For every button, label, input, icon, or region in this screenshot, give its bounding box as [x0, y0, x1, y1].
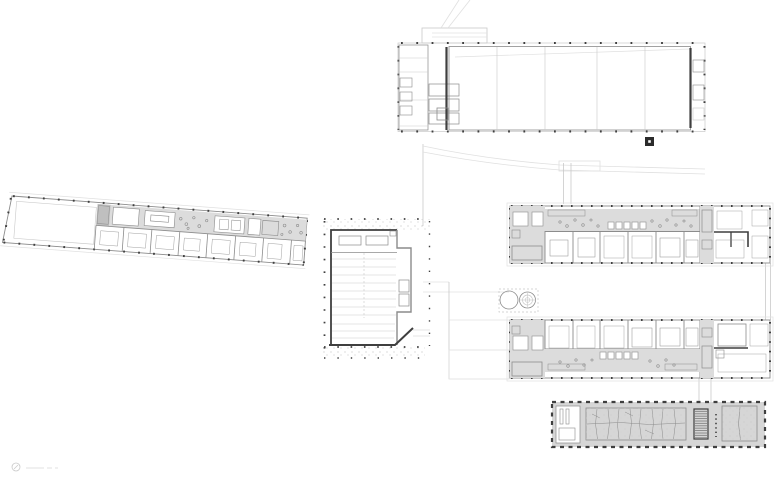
lower-end-rooms — [714, 324, 768, 372]
auditorium-hall — [329, 230, 430, 345]
workshop-building — [552, 402, 765, 447]
angled-classroom-building — [0, 192, 309, 269]
corridor-tables — [608, 222, 646, 229]
colonnade-band-bottom — [323, 347, 425, 358]
seating-rows — [332, 253, 396, 318]
hall-building — [398, 0, 705, 146]
lower-corridor — [545, 349, 700, 372]
left-stair-core — [510, 320, 545, 378]
drawing-stamp — [12, 463, 58, 471]
corridor-band — [96, 204, 307, 241]
lab-building-upper — [507, 203, 773, 266]
upper-corridor — [545, 209, 700, 232]
corridor-tables — [600, 352, 638, 359]
plan-svg — [0, 0, 780, 483]
stair-runs — [429, 84, 459, 124]
open-end-room — [14, 201, 97, 244]
cracked-pattern-hall — [586, 408, 686, 440]
hall-main-space — [437, 47, 691, 131]
auditorium-building — [323, 219, 430, 358]
entrance-canopy — [422, 0, 487, 43]
hall-service-wing — [399, 45, 459, 130]
shaft-marker — [645, 137, 654, 146]
spiral-stair-and-skylight — [499, 289, 538, 312]
end-room — [556, 406, 580, 443]
lab-building-lower — [507, 317, 773, 381]
left-stair-core — [510, 206, 545, 263]
hall-right-band — [693, 60, 704, 120]
upper-right-core — [700, 206, 714, 263]
floor-plan-drawing — [0, 0, 780, 483]
lower-right-core — [700, 320, 714, 378]
textured-rooms — [722, 406, 757, 441]
upper-end-rooms — [714, 210, 768, 258]
